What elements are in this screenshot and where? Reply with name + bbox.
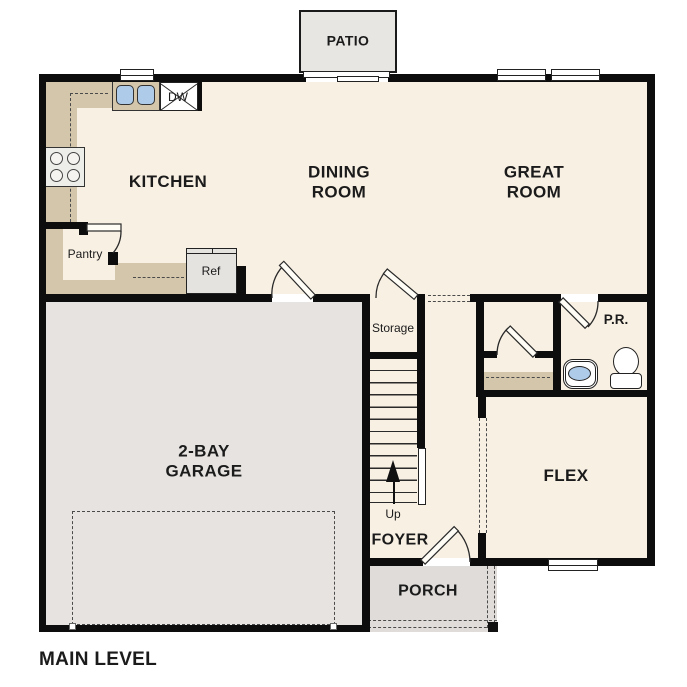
wall bbox=[362, 294, 370, 632]
range-icon bbox=[45, 147, 85, 187]
vanity-sink-icon bbox=[563, 359, 598, 389]
wall bbox=[417, 294, 425, 448]
garage-jamb bbox=[330, 623, 337, 630]
wall bbox=[476, 351, 497, 358]
powder-room-label: P.R. bbox=[604, 312, 629, 328]
closet-rod-dashed bbox=[486, 377, 550, 378]
wall bbox=[476, 294, 484, 397]
pantry-label: Pantry bbox=[68, 247, 103, 261]
pantry-shelf-bottom bbox=[46, 280, 115, 294]
wall bbox=[478, 397, 486, 418]
wall bbox=[553, 294, 561, 390]
wall bbox=[598, 294, 647, 302]
hall-opening-dashed bbox=[428, 295, 470, 296]
toilet-tank bbox=[610, 373, 642, 389]
porch-edge-dashed bbox=[368, 620, 497, 621]
wall bbox=[39, 222, 83, 229]
up-label: Up bbox=[385, 507, 400, 521]
counter-edge-dashed bbox=[133, 277, 184, 278]
wall bbox=[39, 74, 306, 82]
great-room-label: GREAT ROOM bbox=[504, 163, 564, 204]
storage-label: Storage bbox=[372, 321, 414, 335]
wall bbox=[237, 266, 246, 294]
stair-handrail bbox=[418, 448, 426, 505]
sink-icon bbox=[112, 80, 160, 111]
kitchen-label: KITCHEN bbox=[129, 172, 207, 192]
porch-edge-dashed bbox=[487, 566, 488, 628]
garage-jamb bbox=[69, 623, 76, 630]
counter-edge-dashed bbox=[70, 93, 108, 94]
kitchen-window-icon bbox=[120, 69, 154, 81]
wall bbox=[476, 390, 655, 397]
great-room-window-icon bbox=[551, 69, 600, 81]
wall bbox=[647, 74, 655, 566]
porch-label: PORCH bbox=[398, 581, 458, 600]
garage-label: 2-BAY GARAGE bbox=[165, 442, 242, 483]
flex-opening-dashed bbox=[479, 418, 480, 533]
dishwasher-label: DW bbox=[168, 90, 188, 104]
patio-label: PATIO bbox=[327, 33, 370, 50]
foyer-label: FOYER bbox=[371, 530, 428, 549]
wall bbox=[39, 74, 46, 632]
floor-plan: PATIO bbox=[0, 0, 687, 687]
up-arrow-stem bbox=[393, 480, 395, 504]
wall bbox=[198, 82, 202, 111]
plan-title: MAIN LEVEL bbox=[39, 649, 157, 671]
wall bbox=[478, 533, 486, 566]
wall bbox=[108, 252, 118, 265]
flex-window-icon bbox=[548, 559, 598, 571]
hall-opening-dashed bbox=[428, 301, 470, 302]
garage-door-outline bbox=[72, 511, 335, 625]
porch-column bbox=[488, 622, 498, 632]
wall bbox=[39, 625, 368, 632]
up-arrow-icon bbox=[386, 460, 400, 482]
kitchen-counter-bottom bbox=[115, 263, 187, 294]
great-room-window-icon bbox=[497, 69, 546, 81]
toilet-icon bbox=[613, 347, 639, 376]
dining-room-label: DINING ROOM bbox=[308, 163, 370, 204]
flex-opening-dashed bbox=[486, 418, 487, 533]
wall bbox=[79, 222, 88, 235]
coat-closet-shelf bbox=[484, 372, 553, 390]
sliding-door-icon bbox=[337, 76, 379, 82]
wall bbox=[362, 352, 425, 359]
porch-edge-dashed bbox=[368, 627, 497, 628]
wall bbox=[362, 558, 423, 566]
wall bbox=[39, 294, 272, 302]
refrigerator-label: Ref bbox=[202, 264, 221, 278]
porch-edge-dashed bbox=[494, 566, 495, 628]
flex-label: FLEX bbox=[543, 466, 588, 486]
